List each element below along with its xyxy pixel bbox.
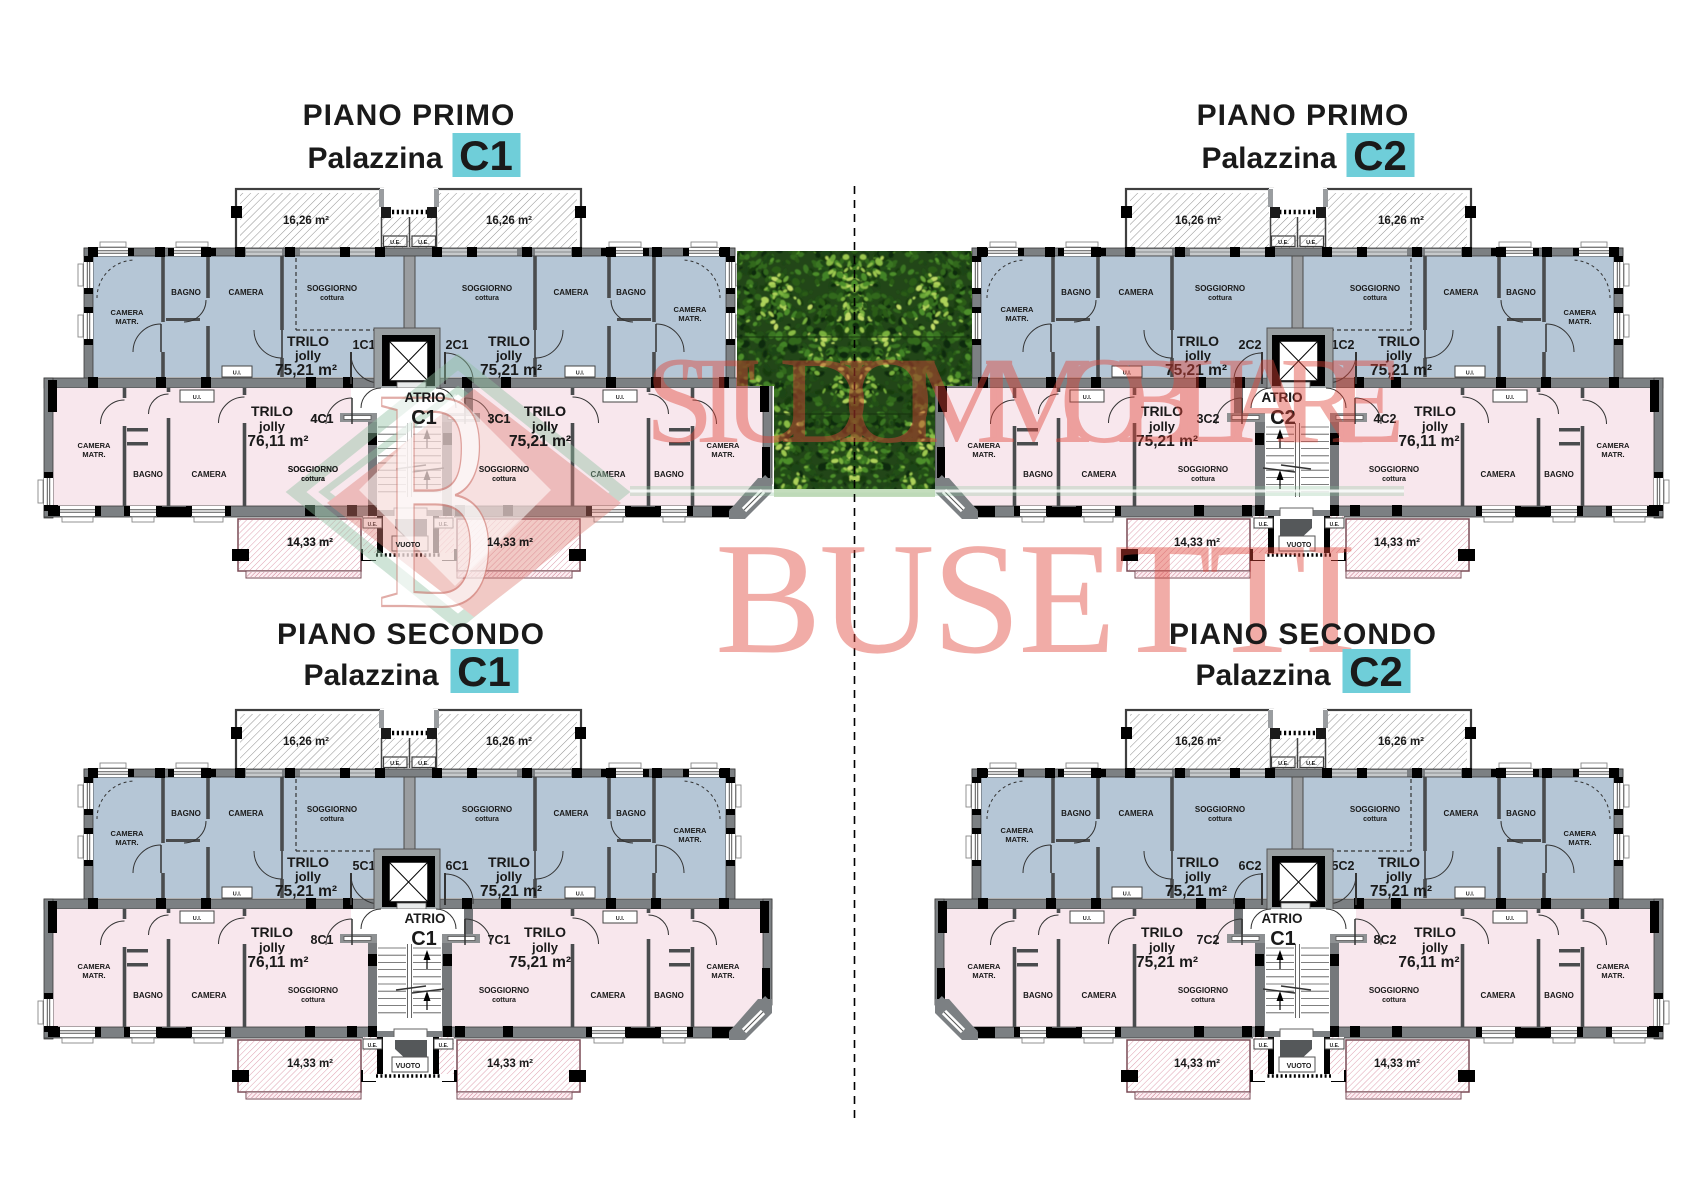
svg-text:16,26 m²: 16,26 m² [283, 215, 329, 227]
svg-text:U.I.: U.I. [233, 892, 242, 898]
svg-text:TRILO: TRILO [1414, 403, 1456, 419]
svg-text:75,21 m²: 75,21 m² [1370, 883, 1432, 900]
svg-text:16,26 m²: 16,26 m² [1175, 215, 1221, 227]
svg-text:BAGNO: BAGNO [1506, 288, 1536, 297]
svg-text:MATR.: MATR. [678, 835, 701, 844]
svg-text:BAGNO: BAGNO [1061, 809, 1091, 818]
svg-text:jolly: jolly [1385, 869, 1413, 884]
svg-text:SOGGIORNO: SOGGIORNO [307, 805, 357, 814]
svg-text:CAMERA: CAMERA [674, 826, 707, 835]
svg-text:TRILO: TRILO [1177, 854, 1219, 870]
svg-text:75,21 m²: 75,21 m² [480, 883, 542, 900]
svg-text:jolly: jolly [258, 419, 286, 434]
svg-text:SOGGIORNO: SOGGIORNO [307, 284, 357, 293]
svg-text:SOGGIORNO: SOGGIORNO [479, 986, 529, 995]
svg-text:jolly: jolly [294, 348, 322, 363]
svg-text:SOGGIORNO: SOGGIORNO [1369, 986, 1419, 995]
svg-text:TRILO: TRILO [251, 924, 293, 940]
svg-text:76,11 m²: 76,11 m² [1398, 954, 1459, 971]
svg-text:MATR.: MATR. [82, 971, 105, 980]
svg-text:jolly: jolly [1421, 940, 1449, 955]
svg-text:U.E.: U.E. [1259, 1043, 1269, 1049]
svg-text:BAGNO: BAGNO [1506, 809, 1536, 818]
svg-text:MATR.: MATR. [678, 314, 701, 323]
svg-text:jolly: jolly [294, 869, 322, 884]
svg-text:cottura: cottura [320, 816, 344, 823]
svg-text:14,33 m²: 14,33 m² [1374, 537, 1420, 549]
svg-text:CAMERA: CAMERA [1597, 441, 1630, 450]
svg-text:PIANO SECONDO: PIANO SECONDO [1169, 618, 1437, 651]
svg-text:VUOTO: VUOTO [396, 542, 421, 549]
svg-text:14,33 m²: 14,33 m² [1374, 1058, 1420, 1070]
svg-text:CAMERA: CAMERA [111, 829, 144, 838]
svg-text:75,21 m²: 75,21 m² [275, 883, 337, 900]
svg-text:CAMERA: CAMERA [78, 441, 111, 450]
svg-text:75,21 m²: 75,21 m² [275, 362, 337, 379]
svg-text:CAMERA: CAMERA [1443, 288, 1478, 297]
svg-text:BAGNO: BAGNO [171, 288, 201, 297]
svg-text:U.I.: U.I. [1083, 916, 1092, 922]
svg-text:76,11 m²: 76,11 m² [1398, 433, 1459, 450]
svg-text:U.E.: U.E. [1330, 1043, 1340, 1049]
svg-text:MATR.: MATR. [972, 971, 995, 980]
svg-text:SOGGIORNO: SOGGIORNO [1195, 805, 1245, 814]
svg-text:CAMERA: CAMERA [1081, 470, 1116, 479]
svg-text:CAMERA: CAMERA [1597, 962, 1630, 971]
svg-text:U.E.: U.E. [1278, 240, 1289, 246]
svg-text:75,21 m²: 75,21 m² [1136, 954, 1198, 971]
svg-text:U.I.: U.I. [1506, 916, 1515, 922]
svg-text:CAMERA: CAMERA [1081, 991, 1116, 1000]
svg-text:U.I.: U.I. [616, 916, 625, 922]
svg-text:cottura: cottura [1382, 997, 1406, 1004]
svg-text:14,33 m²: 14,33 m² [1174, 1058, 1220, 1070]
svg-text:BAGNO: BAGNO [1061, 288, 1091, 297]
svg-text:U.E.: U.E. [390, 240, 401, 246]
svg-text:jolly: jolly [1148, 940, 1176, 955]
svg-text:SOGGIORNO: SOGGIORNO [1350, 805, 1400, 814]
svg-text:CAMERA: CAMERA [1480, 991, 1515, 1000]
svg-text:TRILO: TRILO [524, 924, 566, 940]
svg-text:cottura: cottura [1363, 816, 1387, 823]
svg-text:TRILO: TRILO [251, 403, 293, 419]
svg-text:jolly: jolly [495, 348, 523, 363]
svg-text:cottura: cottura [1191, 997, 1215, 1004]
svg-text:14,33 m²: 14,33 m² [287, 1058, 333, 1070]
svg-text:C1: C1 [1270, 928, 1296, 950]
svg-text:MATR.: MATR. [1601, 971, 1624, 980]
svg-text:jolly: jolly [1421, 419, 1449, 434]
svg-text:CAMERA: CAMERA [1001, 826, 1034, 835]
svg-text:C1: C1 [411, 928, 437, 950]
svg-text:U.I.: U.I. [1123, 892, 1132, 898]
svg-text:cottura: cottura [301, 476, 325, 483]
svg-text:6C1: 6C1 [446, 859, 469, 873]
svg-text:14,33 m²: 14,33 m² [287, 537, 333, 549]
svg-text:TRILO: TRILO [287, 854, 329, 870]
svg-text:Palazzina: Palazzina [1201, 142, 1336, 175]
svg-text:MATR.: MATR. [1601, 450, 1624, 459]
svg-text:MATR.: MATR. [1568, 838, 1591, 847]
svg-text:STUDIO IMMOBILIARE: STUDIO IMMOBILIARE [645, 332, 1405, 469]
svg-text:75,21 m²: 75,21 m² [1165, 883, 1227, 900]
svg-text:ATRIO: ATRIO [405, 390, 446, 405]
svg-text:TRILO: TRILO [287, 333, 329, 349]
svg-text:cottura: cottura [492, 476, 516, 483]
svg-text:5C2: 5C2 [1332, 859, 1355, 873]
svg-text:CAMERA: CAMERA [1118, 288, 1153, 297]
svg-text:CAMERA: CAMERA [1443, 809, 1478, 818]
svg-text:cottura: cottura [1191, 476, 1215, 483]
svg-text:CAMERA: CAMERA [78, 962, 111, 971]
svg-text:CAMERA: CAMERA [111, 308, 144, 317]
svg-text:ATRIO: ATRIO [405, 911, 446, 926]
svg-text:cottura: cottura [475, 295, 499, 302]
svg-text:U.I.: U.I. [1466, 371, 1475, 377]
svg-text:cottura: cottura [475, 816, 499, 823]
svg-text:CAMERA: CAMERA [191, 991, 226, 1000]
svg-text:PIANO PRIMO: PIANO PRIMO [303, 99, 516, 132]
svg-text:CAMERA: CAMERA [228, 288, 263, 297]
svg-text:jolly: jolly [258, 940, 286, 955]
svg-text:MATR.: MATR. [1005, 314, 1028, 323]
svg-text:U.E.: U.E. [439, 1043, 449, 1049]
svg-text:Palazzina: Palazzina [307, 142, 442, 175]
svg-text:SOGGIORNO: SOGGIORNO [1350, 284, 1400, 293]
svg-text:SOGGIORNO: SOGGIORNO [479, 465, 529, 474]
svg-text:jolly: jolly [531, 940, 559, 955]
svg-text:U.I.: U.I. [1466, 892, 1475, 898]
svg-text:MATR.: MATR. [1005, 835, 1028, 844]
svg-text:BAGNO: BAGNO [654, 470, 684, 479]
svg-text:U.I.: U.I. [193, 916, 202, 922]
svg-text:SOGGIORNO: SOGGIORNO [462, 284, 512, 293]
svg-text:U.E.: U.E. [1306, 240, 1317, 246]
svg-text:8C1: 8C1 [311, 933, 334, 947]
svg-text:cottura: cottura [1208, 816, 1232, 823]
svg-text:5C1: 5C1 [353, 859, 376, 873]
svg-text:CAMERA: CAMERA [968, 962, 1001, 971]
svg-text:MATR.: MATR. [115, 838, 138, 847]
svg-text:VUOTO: VUOTO [1287, 1063, 1312, 1070]
svg-text:BAGNO: BAGNO [1023, 991, 1053, 1000]
svg-text:jolly: jolly [531, 419, 559, 434]
svg-text:BAGNO: BAGNO [171, 809, 201, 818]
svg-text:VUOTO: VUOTO [396, 1063, 421, 1070]
svg-text:8C2: 8C2 [1374, 933, 1397, 947]
svg-text:14,33 m²: 14,33 m² [487, 537, 533, 549]
svg-text:PIANO SECONDO: PIANO SECONDO [277, 618, 545, 651]
svg-text:76,11 m²: 76,11 m² [247, 433, 308, 450]
svg-text:U.I.: U.I. [576, 371, 585, 377]
svg-text:CAMERA: CAMERA [674, 305, 707, 314]
svg-text:U.E.: U.E. [418, 240, 429, 246]
svg-text:TRILO: TRILO [524, 403, 566, 419]
svg-text:U.E.: U.E. [368, 1043, 378, 1049]
svg-text:Palazzina: Palazzina [303, 659, 438, 692]
svg-text:U.E.: U.E. [418, 761, 429, 767]
svg-text:16,26 m²: 16,26 m² [1175, 736, 1221, 748]
svg-text:76,11 m²: 76,11 m² [247, 954, 308, 971]
svg-text:75,21 m²: 75,21 m² [509, 954, 571, 971]
svg-text:16,26 m²: 16,26 m² [486, 736, 532, 748]
svg-text:TRILO: TRILO [1141, 924, 1183, 940]
svg-text:SOGGIORNO: SOGGIORNO [1195, 284, 1245, 293]
svg-text:U.I.: U.I. [1506, 395, 1515, 401]
svg-text:CAMERA: CAMERA [1001, 305, 1034, 314]
svg-text:6C2: 6C2 [1239, 859, 1262, 873]
svg-text:BAGNO: BAGNO [1023, 470, 1053, 479]
svg-text:16,26 m²: 16,26 m² [1378, 736, 1424, 748]
svg-text:CAMERA: CAMERA [228, 809, 263, 818]
svg-text:BAGNO: BAGNO [1544, 470, 1574, 479]
svg-text:SOGGIORNO: SOGGIORNO [462, 805, 512, 814]
svg-text:14,33 m²: 14,33 m² [487, 1058, 533, 1070]
svg-text:7C1: 7C1 [488, 933, 511, 947]
svg-text:CAMERA: CAMERA [553, 288, 588, 297]
svg-text:C2: C2 [1353, 132, 1407, 179]
svg-text:16,26 m²: 16,26 m² [283, 736, 329, 748]
svg-text:cottura: cottura [492, 997, 516, 1004]
svg-text:U.E.: U.E. [1306, 761, 1317, 767]
svg-text:CAMERA: CAMERA [191, 470, 226, 479]
svg-text:U.E.: U.E. [1278, 761, 1289, 767]
svg-text:PIANO PRIMO: PIANO PRIMO [1197, 99, 1410, 132]
svg-text:75,21 m²: 75,21 m² [509, 433, 571, 450]
svg-text:CAMERA: CAMERA [553, 809, 588, 818]
svg-text:cottura: cottura [1382, 476, 1406, 483]
svg-text:cottura: cottura [1208, 295, 1232, 302]
svg-text:MATR.: MATR. [1568, 317, 1591, 326]
svg-text:CAMERA: CAMERA [1564, 308, 1597, 317]
svg-text:C1: C1 [457, 648, 511, 695]
svg-text:SOGGIORNO: SOGGIORNO [288, 465, 338, 474]
svg-text:MATR.: MATR. [711, 971, 734, 980]
svg-text:1C1: 1C1 [353, 338, 376, 352]
svg-text:cottura: cottura [1363, 295, 1387, 302]
svg-text:BAGNO: BAGNO [1544, 991, 1574, 1000]
svg-text:BAGNO: BAGNO [616, 288, 646, 297]
svg-text:U.I.: U.I. [576, 892, 585, 898]
svg-text:4C1: 4C1 [311, 412, 334, 426]
svg-text:MATR.: MATR. [82, 450, 105, 459]
svg-text:cottura: cottura [301, 997, 325, 1004]
svg-text:CAMERA: CAMERA [590, 991, 625, 1000]
svg-text:Palazzina: Palazzina [1195, 659, 1330, 692]
svg-text:C1: C1 [411, 407, 437, 429]
svg-text:BAGNO: BAGNO [133, 470, 163, 479]
svg-text:C2: C2 [1349, 648, 1403, 695]
svg-text:MATR.: MATR. [115, 317, 138, 326]
svg-text:7C2: 7C2 [1197, 933, 1220, 947]
svg-text:U.I.: U.I. [616, 395, 625, 401]
svg-text:ATRIO: ATRIO [1262, 911, 1303, 926]
svg-text:TRILO: TRILO [1378, 854, 1420, 870]
svg-text:CAMERA: CAMERA [1564, 829, 1597, 838]
svg-text:16,26 m²: 16,26 m² [486, 215, 532, 227]
svg-text:TRILO: TRILO [488, 854, 530, 870]
svg-text:CAMERA: CAMERA [1118, 809, 1153, 818]
svg-text:BAGNO: BAGNO [654, 991, 684, 1000]
svg-text:3C1: 3C1 [488, 412, 511, 426]
svg-text:jolly: jolly [495, 869, 523, 884]
svg-text:CAMERA: CAMERA [707, 962, 740, 971]
svg-text:CAMERA: CAMERA [1480, 470, 1515, 479]
svg-text:C1: C1 [459, 132, 513, 179]
svg-text:U.I.: U.I. [233, 371, 242, 377]
svg-text:SOGGIORNO: SOGGIORNO [1178, 986, 1228, 995]
svg-text:jolly: jolly [1184, 869, 1212, 884]
svg-text:16,26 m²: 16,26 m² [1378, 215, 1424, 227]
svg-text:cottura: cottura [320, 295, 344, 302]
svg-text:BAGNO: BAGNO [133, 991, 163, 1000]
svg-text:TRILO: TRILO [1414, 924, 1456, 940]
svg-text:BAGNO: BAGNO [616, 809, 646, 818]
svg-text:U.E.: U.E. [390, 761, 401, 767]
svg-text:U.I.: U.I. [193, 395, 202, 401]
svg-text:SOGGIORNO: SOGGIORNO [288, 986, 338, 995]
